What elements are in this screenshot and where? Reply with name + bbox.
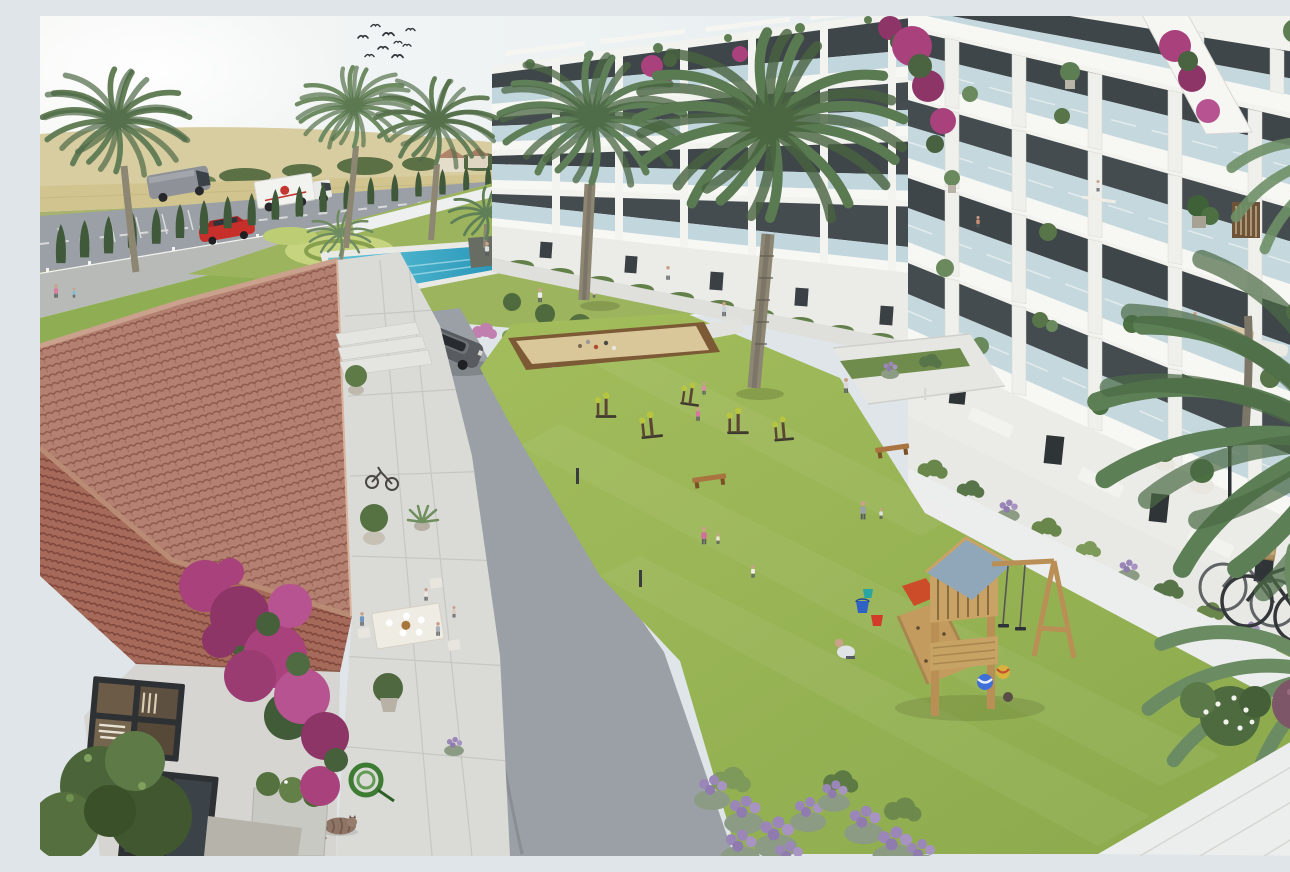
scene-illustration: Aerial 3D architectural rendering of a r… — [40, 16, 1290, 856]
palm-trunk — [1245, 316, 1249, 436]
render-image: Aerial 3D architectural rendering of a r… — [40, 16, 1290, 856]
swing-beam — [992, 561, 1054, 564]
mediterranean-house — [40, 252, 510, 856]
